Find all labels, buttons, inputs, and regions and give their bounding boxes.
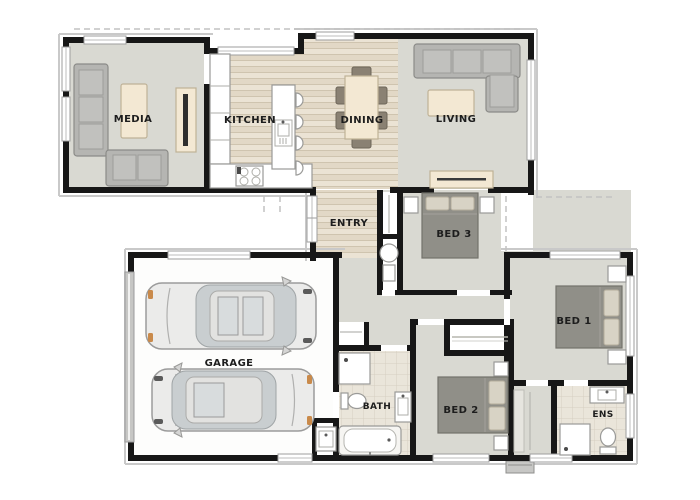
- room-label-entry: ENTRY: [330, 218, 369, 229]
- bath-vanity: [395, 392, 411, 422]
- room-label-kitchen: KITCHEN: [224, 115, 276, 126]
- nightstand: [494, 362, 508, 376]
- room-label-bath: BATH: [363, 402, 391, 412]
- coffee-table-living: [428, 90, 474, 116]
- wc-toilet: [380, 244, 398, 262]
- nightstand: [494, 436, 508, 450]
- ens-vanity: [590, 387, 624, 403]
- coffee-table-media: [121, 84, 147, 138]
- stove: [236, 166, 263, 186]
- nightstand: [608, 350, 626, 364]
- laundry-tub: [316, 427, 336, 451]
- room-label-bed1: BED 1: [556, 316, 591, 327]
- floor-plan: MEDIA KITCHEN DINING LIVING ENTRY BED 3 …: [0, 0, 700, 500]
- shower-ens: [560, 424, 590, 455]
- sideboard: [430, 171, 493, 188]
- car-top: [146, 277, 316, 355]
- floor-plan-page: MEDIA KITCHEN DINING LIVING ENTRY BED 3 …: [0, 0, 700, 500]
- ens-toilet: [600, 428, 616, 454]
- car-bottom: [152, 363, 314, 437]
- kitchen-counter-left: [210, 54, 230, 164]
- shower-bath: [339, 353, 370, 384]
- garage-door: [125, 272, 134, 442]
- room-label-bed3: BED 3: [436, 229, 471, 240]
- nightstand: [480, 197, 494, 213]
- bathtub: [339, 426, 401, 455]
- dining-table: [345, 76, 378, 139]
- room-label-media: MEDIA: [114, 114, 153, 125]
- room-label-bed2: BED 2: [443, 405, 478, 416]
- room-label-dining: DINING: [340, 115, 383, 126]
- room-label-living: LIVING: [436, 114, 477, 125]
- nightstand: [404, 197, 418, 213]
- room-label-ens: ENS: [592, 410, 613, 420]
- porch-dashed: [264, 196, 280, 212]
- room-label-garage: GARAGE: [205, 358, 254, 369]
- linen-closet-floor: [337, 322, 365, 346]
- tv-screen: [183, 94, 188, 146]
- room-dining-floor-upper: [300, 39, 398, 54]
- heat-pump-unit: [506, 461, 534, 473]
- entry-door: [307, 196, 317, 242]
- wc-basin: [383, 265, 395, 281]
- nightstand: [608, 266, 626, 282]
